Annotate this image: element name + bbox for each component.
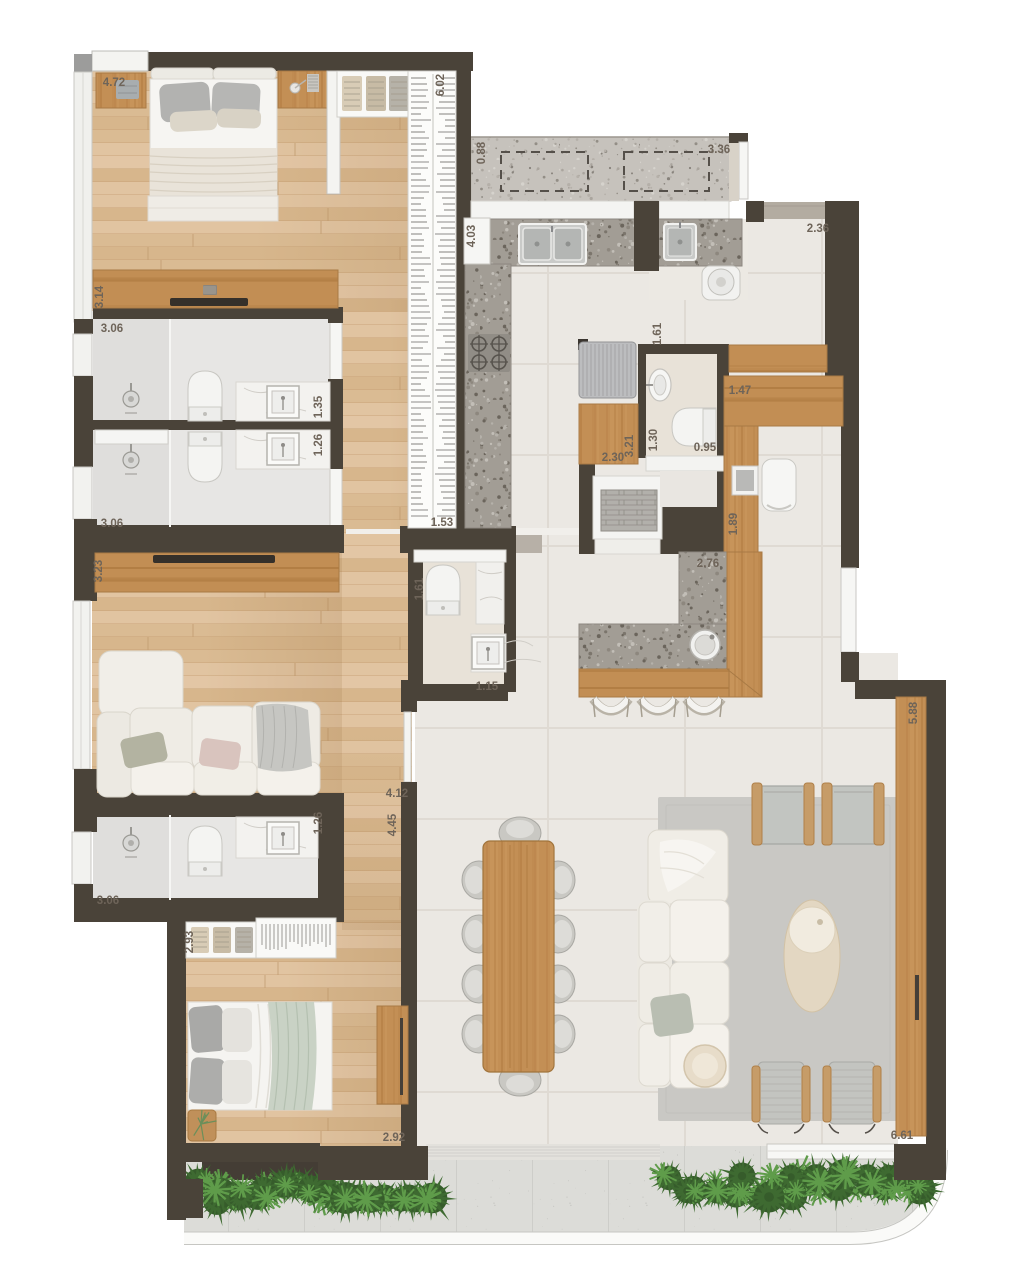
svg-text:0.88: 0.88: [476, 141, 488, 164]
svg-text:1.30: 1.30: [648, 429, 660, 451]
svg-text:1.53: 1.53: [431, 517, 453, 529]
svg-text:4.72: 4.72: [103, 77, 125, 89]
svg-text:2.93: 2.93: [184, 931, 196, 953]
svg-text:3.06: 3.06: [101, 323, 123, 335]
svg-text:4.03: 4.03: [466, 225, 478, 247]
svg-text:3.14: 3.14: [94, 285, 106, 308]
svg-text:1.61: 1.61: [414, 577, 426, 600]
svg-text:1.61: 1.61: [652, 322, 664, 345]
svg-text:2.36: 2.36: [807, 223, 829, 235]
svg-text:6.61: 6.61: [891, 1130, 914, 1142]
svg-text:1.15: 1.15: [476, 681, 499, 693]
svg-text:0.95: 0.95: [694, 442, 717, 454]
svg-text:4.45: 4.45: [387, 813, 399, 836]
svg-text:3.23: 3.23: [93, 560, 105, 582]
svg-text:2.30: 2.30: [602, 452, 624, 464]
svg-text:1.26: 1.26: [313, 434, 325, 456]
svg-text:3.36: 3.36: [708, 144, 730, 156]
svg-text:3.06: 3.06: [97, 895, 119, 907]
svg-text:6.02: 6.02: [435, 74, 447, 96]
svg-text:1.26: 1.26: [313, 812, 325, 834]
svg-text:2.92: 2.92: [383, 1132, 405, 1144]
svg-text:2.76: 2.76: [697, 558, 719, 570]
svg-text:1.35: 1.35: [313, 395, 325, 418]
svg-text:3.21: 3.21: [624, 434, 636, 457]
svg-text:5.88: 5.88: [908, 701, 920, 724]
svg-text:1.47: 1.47: [729, 385, 751, 397]
svg-text:3.06: 3.06: [101, 518, 123, 530]
svg-text:4.12: 4.12: [386, 788, 408, 800]
svg-text:1.89: 1.89: [728, 513, 740, 535]
